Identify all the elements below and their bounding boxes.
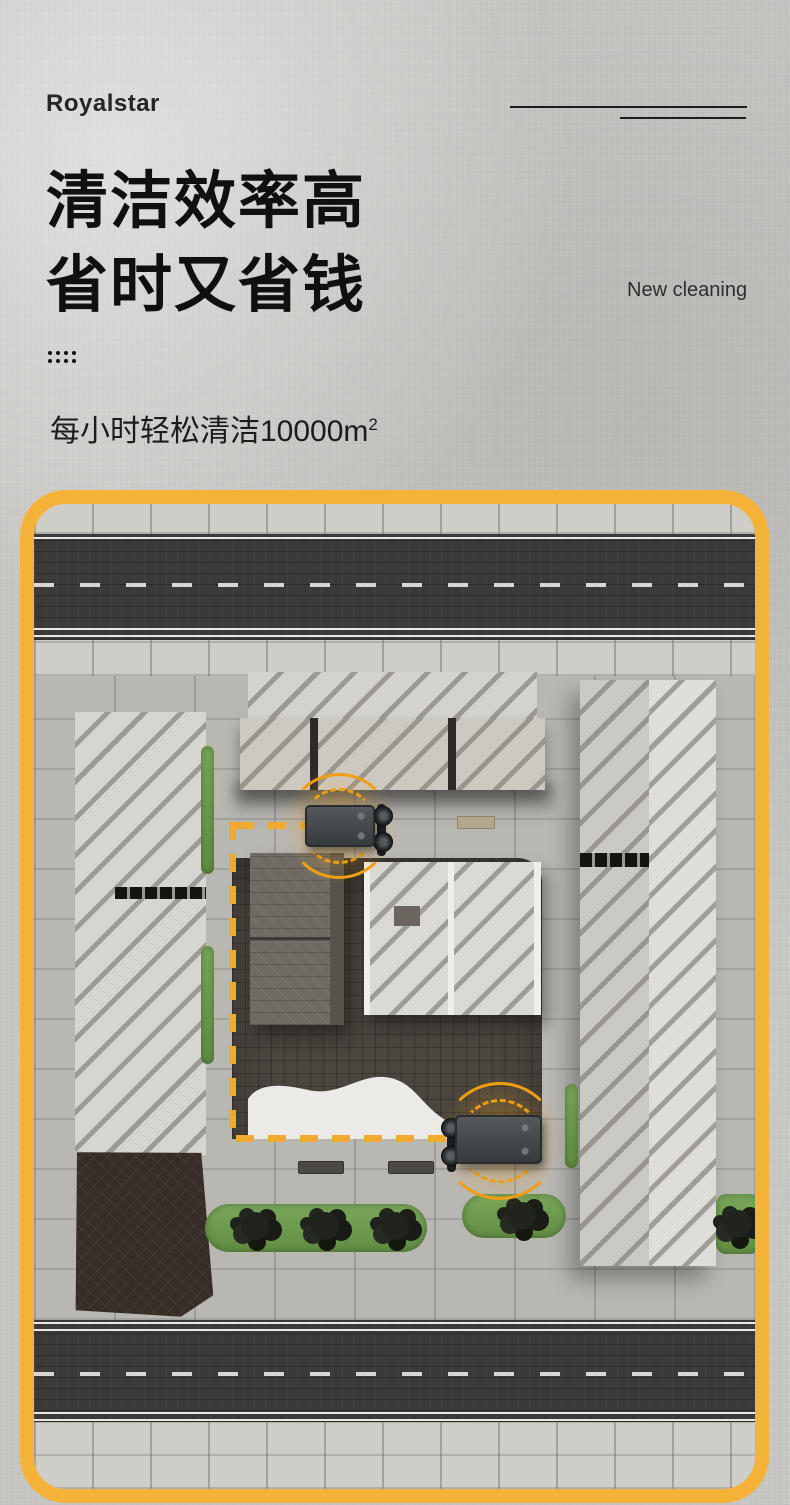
road-edge-line bbox=[34, 628, 755, 630]
sidewalk-mid bbox=[34, 640, 755, 676]
road-edge-line bbox=[34, 1412, 755, 1414]
road-edge-line bbox=[34, 1322, 755, 1324]
dots-grid-icon bbox=[48, 351, 76, 363]
road-top bbox=[34, 534, 755, 640]
right-tower-window-band bbox=[580, 853, 649, 867]
sidewalk-top bbox=[34, 504, 755, 534]
tree bbox=[508, 1202, 536, 1230]
title-line-2: 省时又省钱 bbox=[46, 244, 366, 328]
robot-1-brush bbox=[373, 806, 393, 826]
right-green-strip bbox=[565, 1084, 578, 1168]
awning-building-lower bbox=[240, 718, 545, 790]
brown-building bbox=[70, 1148, 214, 1321]
left-green-strip bbox=[201, 946, 214, 1064]
road-edge-line bbox=[34, 1329, 755, 1331]
roof-beam bbox=[534, 862, 541, 1015]
decor-line-long bbox=[510, 106, 747, 108]
left-green-strip bbox=[201, 746, 214, 874]
awning-building-upper bbox=[248, 672, 537, 720]
cleaning-robot-2 bbox=[455, 1115, 542, 1164]
roof-beam bbox=[364, 862, 370, 1015]
cleaning-robot-1 bbox=[305, 805, 375, 847]
center-white-building bbox=[364, 862, 541, 1015]
road-edge-line bbox=[34, 537, 755, 539]
road-center-dash bbox=[34, 1372, 755, 1376]
road-bottom bbox=[34, 1320, 755, 1422]
subtitle: 每小时轻松清洁10000m2 bbox=[50, 406, 378, 450]
subtitle-superscript: 2 bbox=[368, 415, 377, 434]
cleaning-path-bottom bbox=[236, 1135, 454, 1142]
bench bbox=[388, 1161, 434, 1174]
page-title: 清洁效率高 省时又省钱 bbox=[46, 160, 366, 328]
eyebrow-text: New cleaning bbox=[627, 279, 747, 302]
bench-tan bbox=[457, 816, 495, 829]
tree bbox=[241, 1212, 269, 1240]
title-line-1: 清洁效率高 bbox=[46, 160, 366, 244]
roof-beam bbox=[448, 862, 454, 1015]
sidewalk-bottom bbox=[34, 1422, 755, 1489]
bench bbox=[298, 1161, 344, 1174]
marketing-page: Royalstar 清洁效率高 省时又省钱 New cleaning 每小时轻松… bbox=[0, 0, 790, 1505]
roof-hatch bbox=[394, 906, 420, 926]
aerial-illustration-panel bbox=[20, 490, 769, 1503]
decor-line-short bbox=[620, 117, 746, 119]
tree bbox=[311, 1212, 339, 1240]
left-tower bbox=[75, 712, 206, 1164]
royalstar-logo: Royalstar bbox=[46, 90, 160, 118]
tree bbox=[724, 1210, 752, 1238]
road-edge-line bbox=[34, 635, 755, 637]
left-tower-window-band bbox=[115, 887, 206, 899]
right-tower bbox=[580, 680, 716, 1266]
right-tower-left-slab bbox=[580, 680, 649, 1266]
road-edge-line bbox=[34, 1419, 755, 1421]
robot-1-brush bbox=[373, 832, 393, 852]
right-tower-right-slab bbox=[649, 680, 716, 1266]
aerial-scene bbox=[34, 504, 755, 1489]
cleaning-path-left bbox=[229, 822, 236, 1142]
tree bbox=[381, 1212, 409, 1240]
road-center-dash bbox=[34, 583, 755, 587]
awning-gap bbox=[448, 718, 456, 790]
subtitle-text: 每小时轻松清洁10000m bbox=[50, 415, 368, 448]
